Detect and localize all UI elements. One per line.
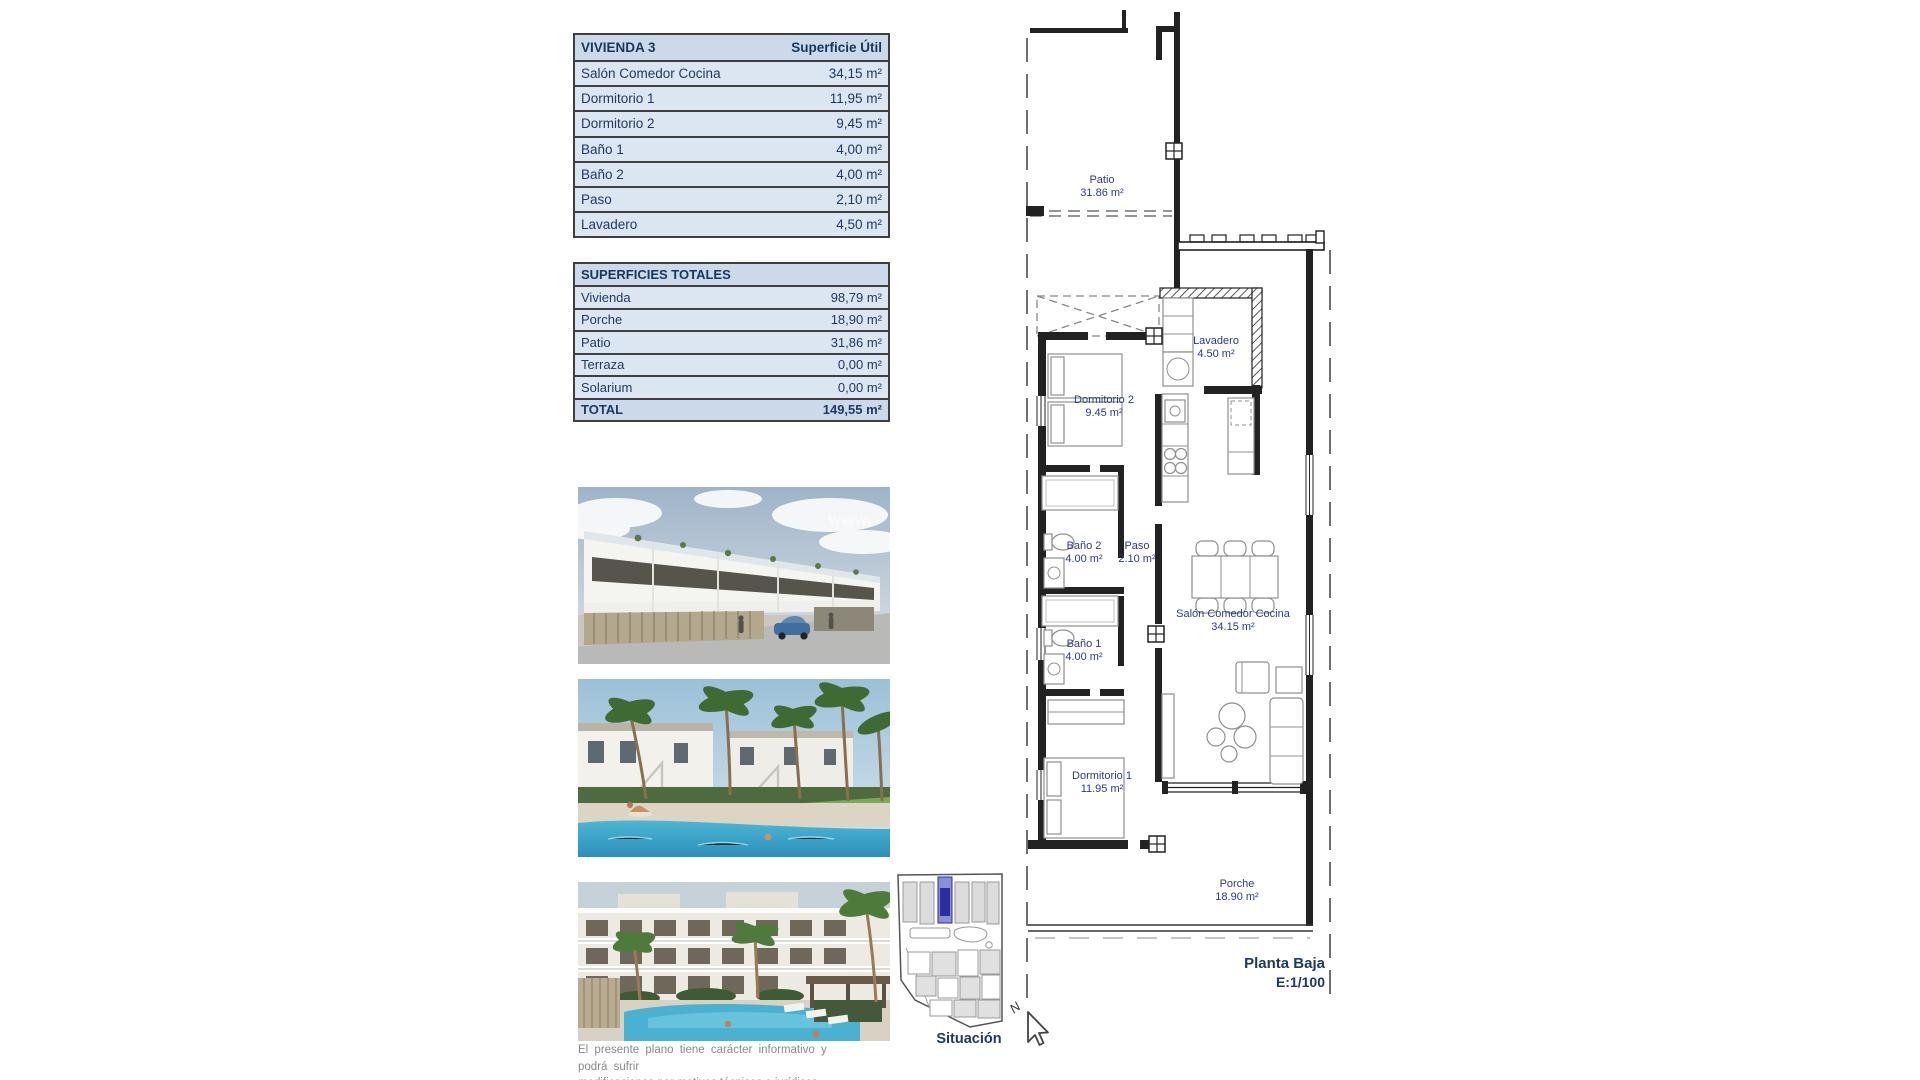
room-area-paso: 2.10 m² — [1118, 553, 1156, 565]
row-value: 0,00 m² — [838, 357, 882, 372]
table-row: Solarium 0,00 m² — [575, 377, 888, 398]
window-marker — [1148, 626, 1164, 642]
room-area-patio: 31.86 m² — [1080, 187, 1124, 199]
row-label: Lavadero — [581, 217, 637, 232]
side-table — [1276, 667, 1302, 693]
sink — [1044, 558, 1064, 588]
room-label-dormitorio2: Dormitorio 2 — [1074, 394, 1134, 406]
table-row: Baño 1 4,00 m² — [575, 138, 888, 161]
room-label-bano2: Baño 2 — [1067, 540, 1102, 552]
table-row: Vivienda 98,79 m² — [575, 287, 888, 308]
row-value: 0,00 m² — [838, 380, 882, 395]
row-label: Solarium — [581, 380, 632, 395]
row-label: Patio — [581, 335, 611, 350]
room-area-dormitorio2: 9.45 m² — [1085, 407, 1123, 419]
row-value: 34,15 m² — [829, 66, 882, 81]
vivienda-surface-table: VIVIENDA 3 Superficie Útil Salón Comedor… — [573, 33, 890, 238]
floor-plan-drawing: Patio 31.86 m² Lavadero 4.50 m² Dormitor… — [890, 0, 1380, 1080]
room-area-porche: 18.90 m² — [1215, 891, 1259, 903]
total-label: TOTAL — [581, 402, 623, 417]
plan-document-page: VIVIENDA 3 Superficie Útil Salón Comedor… — [0, 0, 1920, 1080]
kitchen-sink — [1165, 400, 1185, 422]
row-label: Dormitorio 1 — [581, 91, 655, 106]
table-row: Patio 31,86 m² — [575, 332, 888, 353]
table-row: Paso 2,10 m² — [575, 188, 888, 211]
render-photo-apartments — [578, 882, 890, 1041]
bathroom2-fixtures — [1042, 476, 1118, 588]
row-label: Baño 1 — [581, 142, 624, 157]
vivienda-table-header-value: Superficie Útil — [791, 40, 882, 55]
room-label-lavadero: Lavadero — [1193, 335, 1239, 347]
dining-table — [1192, 556, 1278, 598]
master-bedroom-furniture — [1044, 700, 1124, 838]
table-row: Dormitorio 1 11,95 m² — [575, 87, 888, 110]
room-label-dormitorio1: Dormitorio 1 — [1072, 770, 1132, 782]
disclaimer-line-2: modificaciones por motivos técnicos o ju… — [578, 1075, 836, 1080]
disclaimer-line-1: El presente plano tiene carácter informa… — [578, 1042, 836, 1075]
row-value: 98,79 m² — [831, 290, 882, 305]
totals-surface-table: SUPERFICIES TOTALES Vivienda 98,79 m² Po… — [573, 262, 890, 422]
north-indicator: N — [1007, 998, 1048, 1045]
window-marker — [1166, 143, 1182, 159]
row-value: 2,10 m² — [836, 192, 882, 207]
upper-facade-wall — [1178, 231, 1324, 250]
situation-map-label: Situación — [936, 1031, 1001, 1047]
row-value: 9,45 m² — [836, 116, 882, 131]
north-arrow-icon — [1028, 1012, 1048, 1045]
toilet — [1044, 534, 1052, 550]
room-area-bano2: 4.00 m² — [1065, 553, 1103, 565]
render-photo-pool — [578, 679, 890, 857]
plan-title: Planta Baja — [1244, 955, 1326, 972]
vivienda-table-header: VIVIENDA 3 Superficie Útil — [575, 35, 888, 60]
total-value: 149,55 m² — [823, 402, 882, 417]
window-marker — [1146, 328, 1162, 344]
patio-walls — [1026, 10, 1182, 298]
row-label: Dormitorio 2 — [581, 116, 655, 131]
table-total-row: TOTAL 149,55 m² — [575, 400, 888, 421]
lounge-furniture — [1162, 662, 1303, 784]
kitchen — [1162, 394, 1254, 502]
row-value: 4,50 m² — [836, 217, 882, 232]
table-row: Dormitorio 2 9,45 m² — [575, 112, 888, 135]
row-label: Terraza — [581, 357, 624, 372]
table-row: Baño 2 4,00 m² — [575, 163, 888, 186]
disclaimer-note: El presente plano tiene carácter informa… — [578, 1042, 836, 1080]
room-label-patio: Patio — [1089, 174, 1114, 186]
vivienda-table-title: VIVIENDA 3 — [581, 40, 656, 55]
window-marker — [1149, 836, 1165, 852]
watermark: www. — [827, 510, 872, 529]
row-label: Porche — [581, 312, 622, 327]
fridge-column — [1228, 398, 1254, 474]
tv-unit — [1162, 694, 1174, 778]
room-area-bano1: 4.00 m² — [1065, 651, 1103, 663]
room-label-paso: Paso — [1124, 540, 1149, 552]
sofa — [1270, 698, 1303, 784]
row-value: 4,00 m² — [836, 167, 882, 182]
slat-fence — [578, 978, 620, 1028]
row-value: 18,90 m² — [831, 312, 882, 327]
window — [1304, 455, 1315, 515]
room-label-salon: Salón Comedor Cocina — [1176, 608, 1291, 620]
totals-table-header: SUPERFICIES TOTALES — [575, 264, 888, 285]
row-value: 4,00 m² — [836, 142, 882, 157]
site-parcels-bottom — [908, 950, 1000, 1018]
room-area-dormitorio1: 11.95 m² — [1081, 783, 1124, 795]
table-row: Porche 18,90 m² — [575, 310, 888, 331]
window — [1304, 615, 1315, 675]
totals-table-title: SUPERFICIES TOTALES — [581, 267, 731, 282]
table-row: Terraza 0,00 m² — [575, 355, 888, 376]
pergola-deck — [1037, 296, 1159, 336]
highlighted-unit-core — [940, 888, 950, 916]
room-area-salon: 34.15 m² — [1211, 621, 1255, 633]
plan-scale: E:1/100 — [1276, 974, 1325, 990]
row-label: Vivienda — [581, 290, 631, 305]
room-label-bano1: Baño 1 — [1067, 638, 1102, 650]
table-row: Lavadero 4,50 m² — [575, 213, 888, 236]
situation-map: Situación — [898, 874, 1002, 1047]
porch-edge — [1028, 925, 1313, 938]
row-label: Baño 2 — [581, 167, 624, 182]
row-label: Salón Comedor Cocina — [581, 66, 721, 81]
row-value: 31,86 m² — [831, 335, 882, 350]
dining-set — [1192, 541, 1278, 613]
table-row: Salón Comedor Cocina 34,15 m² — [575, 62, 888, 85]
row-value: 11,95 m² — [830, 91, 882, 106]
room-area-lavadero: 4.50 m² — [1197, 348, 1235, 360]
north-label: N — [1007, 998, 1024, 1016]
window — [1034, 396, 1048, 426]
armchair — [1236, 662, 1269, 693]
row-label: Paso — [581, 192, 612, 207]
sink — [1044, 654, 1064, 684]
toilet — [1044, 630, 1052, 646]
room-label-porche: Porche — [1220, 878, 1255, 890]
coffee-tables — [1207, 703, 1256, 762]
render-photo-townhouses: www. — [578, 487, 890, 664]
